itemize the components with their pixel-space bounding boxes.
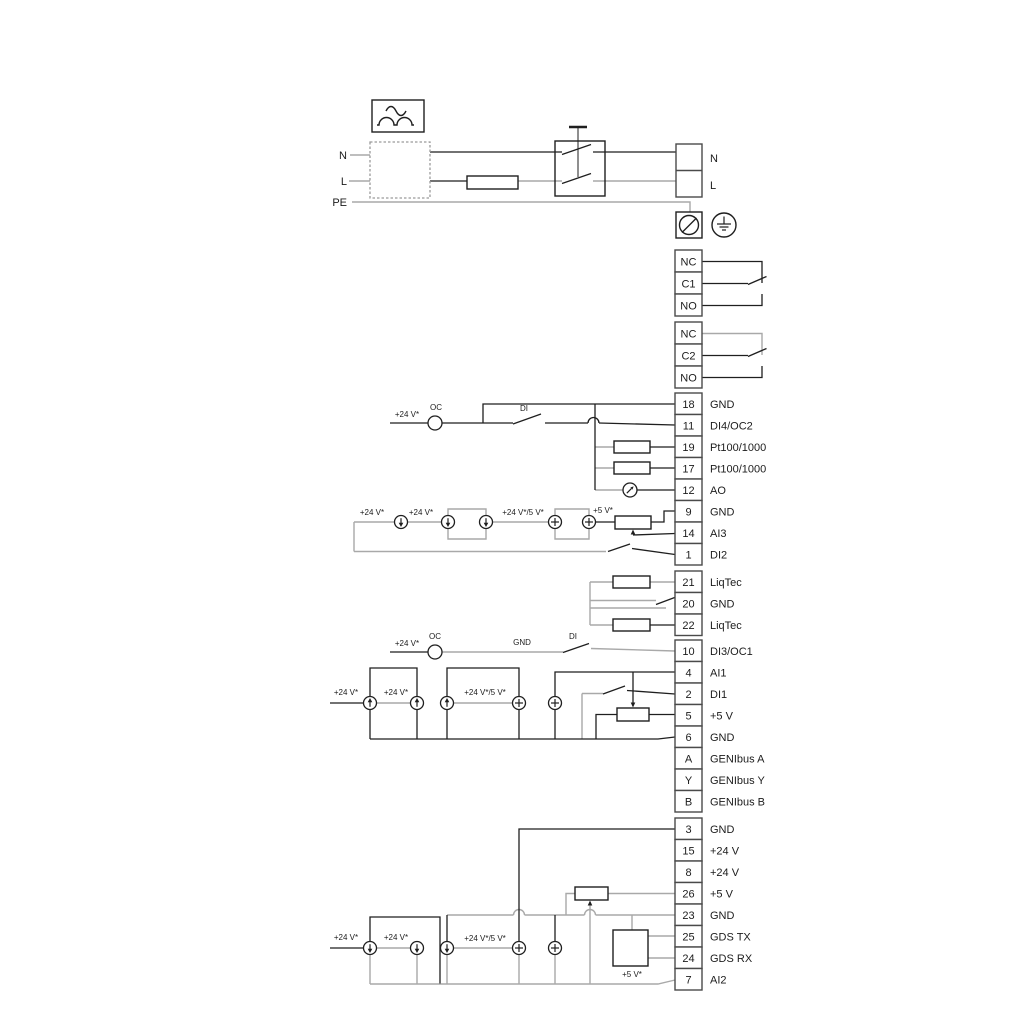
io-terminal-block-3: 3GND 15+24 V 8+24 V 26+5 V 23GND 25GDS T… xyxy=(675,818,753,990)
terminal-number: C1 xyxy=(681,279,695,291)
analog3-supply1-label: +24 V* xyxy=(334,933,358,942)
oc1-di-label: DI xyxy=(520,404,528,413)
terminal-label: LiqTec xyxy=(710,577,742,589)
terminal-number: 23 xyxy=(682,910,694,922)
analog1-supply1-label: +24 V* xyxy=(360,508,384,517)
mains-switch-blade-n xyxy=(562,145,591,155)
ac-dc-converter-icon xyxy=(372,100,424,132)
terminal-number: 7 xyxy=(685,974,691,986)
io-terminal-block-1: 18GND 11DI4/OC2 19Pt100/1000 17Pt100/100… xyxy=(675,393,766,565)
terminal-label: LiqTec xyxy=(710,620,742,632)
terminal-label: AI2 xyxy=(710,974,727,986)
oc2-open-collector-icon xyxy=(428,645,442,659)
voltage-source-icon xyxy=(513,697,526,710)
ai3-potentiometer xyxy=(615,516,651,535)
current-source-down-icon xyxy=(442,516,455,529)
current-source-up-icon xyxy=(441,697,454,710)
analog2-supply3-label: +24 V*/5 V* xyxy=(464,688,506,697)
current-source-down-icon xyxy=(441,942,454,955)
voltage-source-icon xyxy=(549,516,562,529)
terminal-number: 6 xyxy=(685,732,691,744)
terminal-number: 18 xyxy=(682,399,694,411)
mains-section: N L PE N L xyxy=(332,100,736,238)
terminal-number: 1 xyxy=(685,549,691,561)
voltage-source-icon xyxy=(513,942,526,955)
terminal-label: +24 V xyxy=(710,845,740,857)
terminal-number: 25 xyxy=(682,931,694,943)
terminal-label: AI1 xyxy=(710,667,727,679)
terminal-number: 14 xyxy=(682,528,694,540)
terminal-number: 11 xyxy=(683,420,694,432)
mains-terminal-block xyxy=(676,144,702,197)
analog1-supply3-label: +24 V*/5 V* xyxy=(502,508,544,517)
analog3-supply2-label: +24 V* xyxy=(384,933,408,942)
terminal-label: Pt100/1000 xyxy=(710,463,766,475)
terminal-number: 17 xyxy=(682,463,694,475)
oc2-oc-label: OC xyxy=(429,632,441,641)
terminal-number: NC xyxy=(681,257,697,269)
oc2-di-label: DI xyxy=(569,632,577,641)
relay2-contact-blade xyxy=(748,349,767,357)
liqtec-resistor-1 xyxy=(613,576,650,588)
ai2-potentiometer xyxy=(575,887,608,906)
mains-out-l-label: L xyxy=(710,180,716,192)
terminal-number: 10 xyxy=(682,646,694,658)
current-source-up-icon xyxy=(411,697,424,710)
di2-switch-blade xyxy=(608,544,630,552)
terminal-label: +5 V xyxy=(710,710,734,722)
terminal-number: 24 xyxy=(682,953,694,965)
io-terminal-block-2: 10DI3/OC1 4AI1 2DI1 5+5 V 6GND AGENIbus … xyxy=(675,640,765,812)
terminal-label: GND xyxy=(710,824,735,836)
wiring-diagram: N L PE N L NC C1 NO NC C2 NO 18GND 11DI4… xyxy=(0,0,1024,1024)
terminal-number: 20 xyxy=(682,598,694,610)
pt100-resistor-1 xyxy=(614,441,650,453)
terminal-number: 3 xyxy=(685,824,691,836)
pe-screw-terminal-icon xyxy=(676,212,702,238)
voltage-source-icon xyxy=(583,516,596,529)
emc-filter-box xyxy=(370,142,430,198)
terminal-label: DI1 xyxy=(710,689,727,701)
mains-in-n-label: N xyxy=(339,150,347,162)
terminal-label: GND xyxy=(710,399,735,411)
terminal-number: 21 xyxy=(682,577,694,589)
terminal-label: AO xyxy=(710,485,726,497)
terminal-label: GENIbus Y xyxy=(710,775,765,787)
terminal-number: 19 xyxy=(682,442,694,454)
terminal-number: 5 xyxy=(685,710,691,722)
terminal-number: 2 xyxy=(685,689,691,701)
terminal-label: DI3/OC1 xyxy=(710,646,753,658)
oc2-supply-label: +24 V* xyxy=(395,639,419,648)
analog2-supply1-label: +24 V* xyxy=(334,688,358,697)
current-source-down-icon xyxy=(364,942,377,955)
oc2-gnd-label: GND xyxy=(513,638,531,647)
terminal-number: NO xyxy=(680,301,697,313)
terminal-number: B xyxy=(685,796,692,808)
di3-switch-blade xyxy=(563,644,589,653)
current-source-up-icon xyxy=(364,697,377,710)
terminal-number: NO xyxy=(680,373,697,385)
di4-switch-blade xyxy=(513,414,541,424)
voltage-source-icon xyxy=(549,942,562,955)
terminal-label: +5 V xyxy=(710,888,734,900)
terminal-label: Pt100/1000 xyxy=(710,442,766,454)
mains-switch-blade-l xyxy=(562,174,591,184)
relay1-terminal-block: NC C1 NO xyxy=(675,250,702,316)
terminal-label: GDS RX xyxy=(710,953,753,965)
protective-earth-icon xyxy=(712,213,736,237)
liqtec-resistor-2 xyxy=(613,619,650,631)
terminal-label: GND xyxy=(710,910,735,922)
mains-in-l-label: L xyxy=(341,176,347,188)
terminal-label: GENIbus B xyxy=(710,796,765,808)
terminal-label: +24 V xyxy=(710,867,740,879)
relay2-terminal-block: NC C2 NO xyxy=(675,322,702,388)
terminal-number: Y xyxy=(685,775,693,787)
analog2-supply2-label: +24 V* xyxy=(384,688,408,697)
terminal-number: 8 xyxy=(685,867,691,879)
voltage-source-icon xyxy=(549,697,562,710)
liqtec-terminal-block: 21LiqTec 20GND 22LiqTec xyxy=(675,571,742,636)
analog3-supply3-label: +24 V*/5 V* xyxy=(464,934,506,943)
terminal-number: C2 xyxy=(681,351,695,363)
terminal-label: AI3 xyxy=(710,528,727,540)
terminal-number: 22 xyxy=(682,620,694,632)
analog1-supply2-label: +24 V* xyxy=(409,508,433,517)
pt100-resistor-2 xyxy=(614,462,650,474)
oc1-supply-label: +24 V* xyxy=(395,410,419,419)
terminal-number: 26 xyxy=(682,888,694,900)
terminal-label: GDS TX xyxy=(710,931,751,943)
analog3-supply4-label: +5 V* xyxy=(622,970,642,979)
oc1-oc-label: OC xyxy=(430,403,442,412)
terminal-number: NC xyxy=(681,329,697,341)
ai1-potentiometer xyxy=(617,703,649,722)
oc1-open-collector-icon xyxy=(428,416,442,430)
terminal-label: GND xyxy=(710,506,735,518)
di1-switch-blade xyxy=(603,686,625,694)
wiring-diagram-canvas: N L PE N L NC C1 NO NC C2 NO 18GND 11DI4… xyxy=(0,0,1024,1024)
terminal-label: GND xyxy=(710,598,735,610)
terminal-number: A xyxy=(685,753,693,765)
terminal-number: 4 xyxy=(685,667,691,679)
analog1-supply4-label: +5 V* xyxy=(593,506,613,515)
terminal-label: DI4/OC2 xyxy=(710,420,753,432)
current-source-down-icon xyxy=(480,516,493,529)
terminal-label: GND xyxy=(710,732,735,744)
terminal-number: 9 xyxy=(685,506,691,518)
terminal-number: 12 xyxy=(682,485,694,497)
gds-module-box xyxy=(613,930,648,966)
current-source-down-icon xyxy=(411,942,424,955)
mains-double-pole-switch xyxy=(555,127,605,196)
mains-in-pe-label: PE xyxy=(332,197,347,209)
terminal-number: 15 xyxy=(682,845,694,857)
ao-meter-icon xyxy=(623,483,637,497)
terminal-label: DI2 xyxy=(710,549,727,561)
terminal-label: GENIbus A xyxy=(710,753,765,765)
mains-out-n-label: N xyxy=(710,153,718,165)
relay1-contact-blade xyxy=(748,277,767,285)
current-sources xyxy=(364,416,596,955)
current-source-down-icon xyxy=(395,516,408,529)
liqtec-switch-blade xyxy=(656,597,676,605)
fuse xyxy=(467,176,518,189)
